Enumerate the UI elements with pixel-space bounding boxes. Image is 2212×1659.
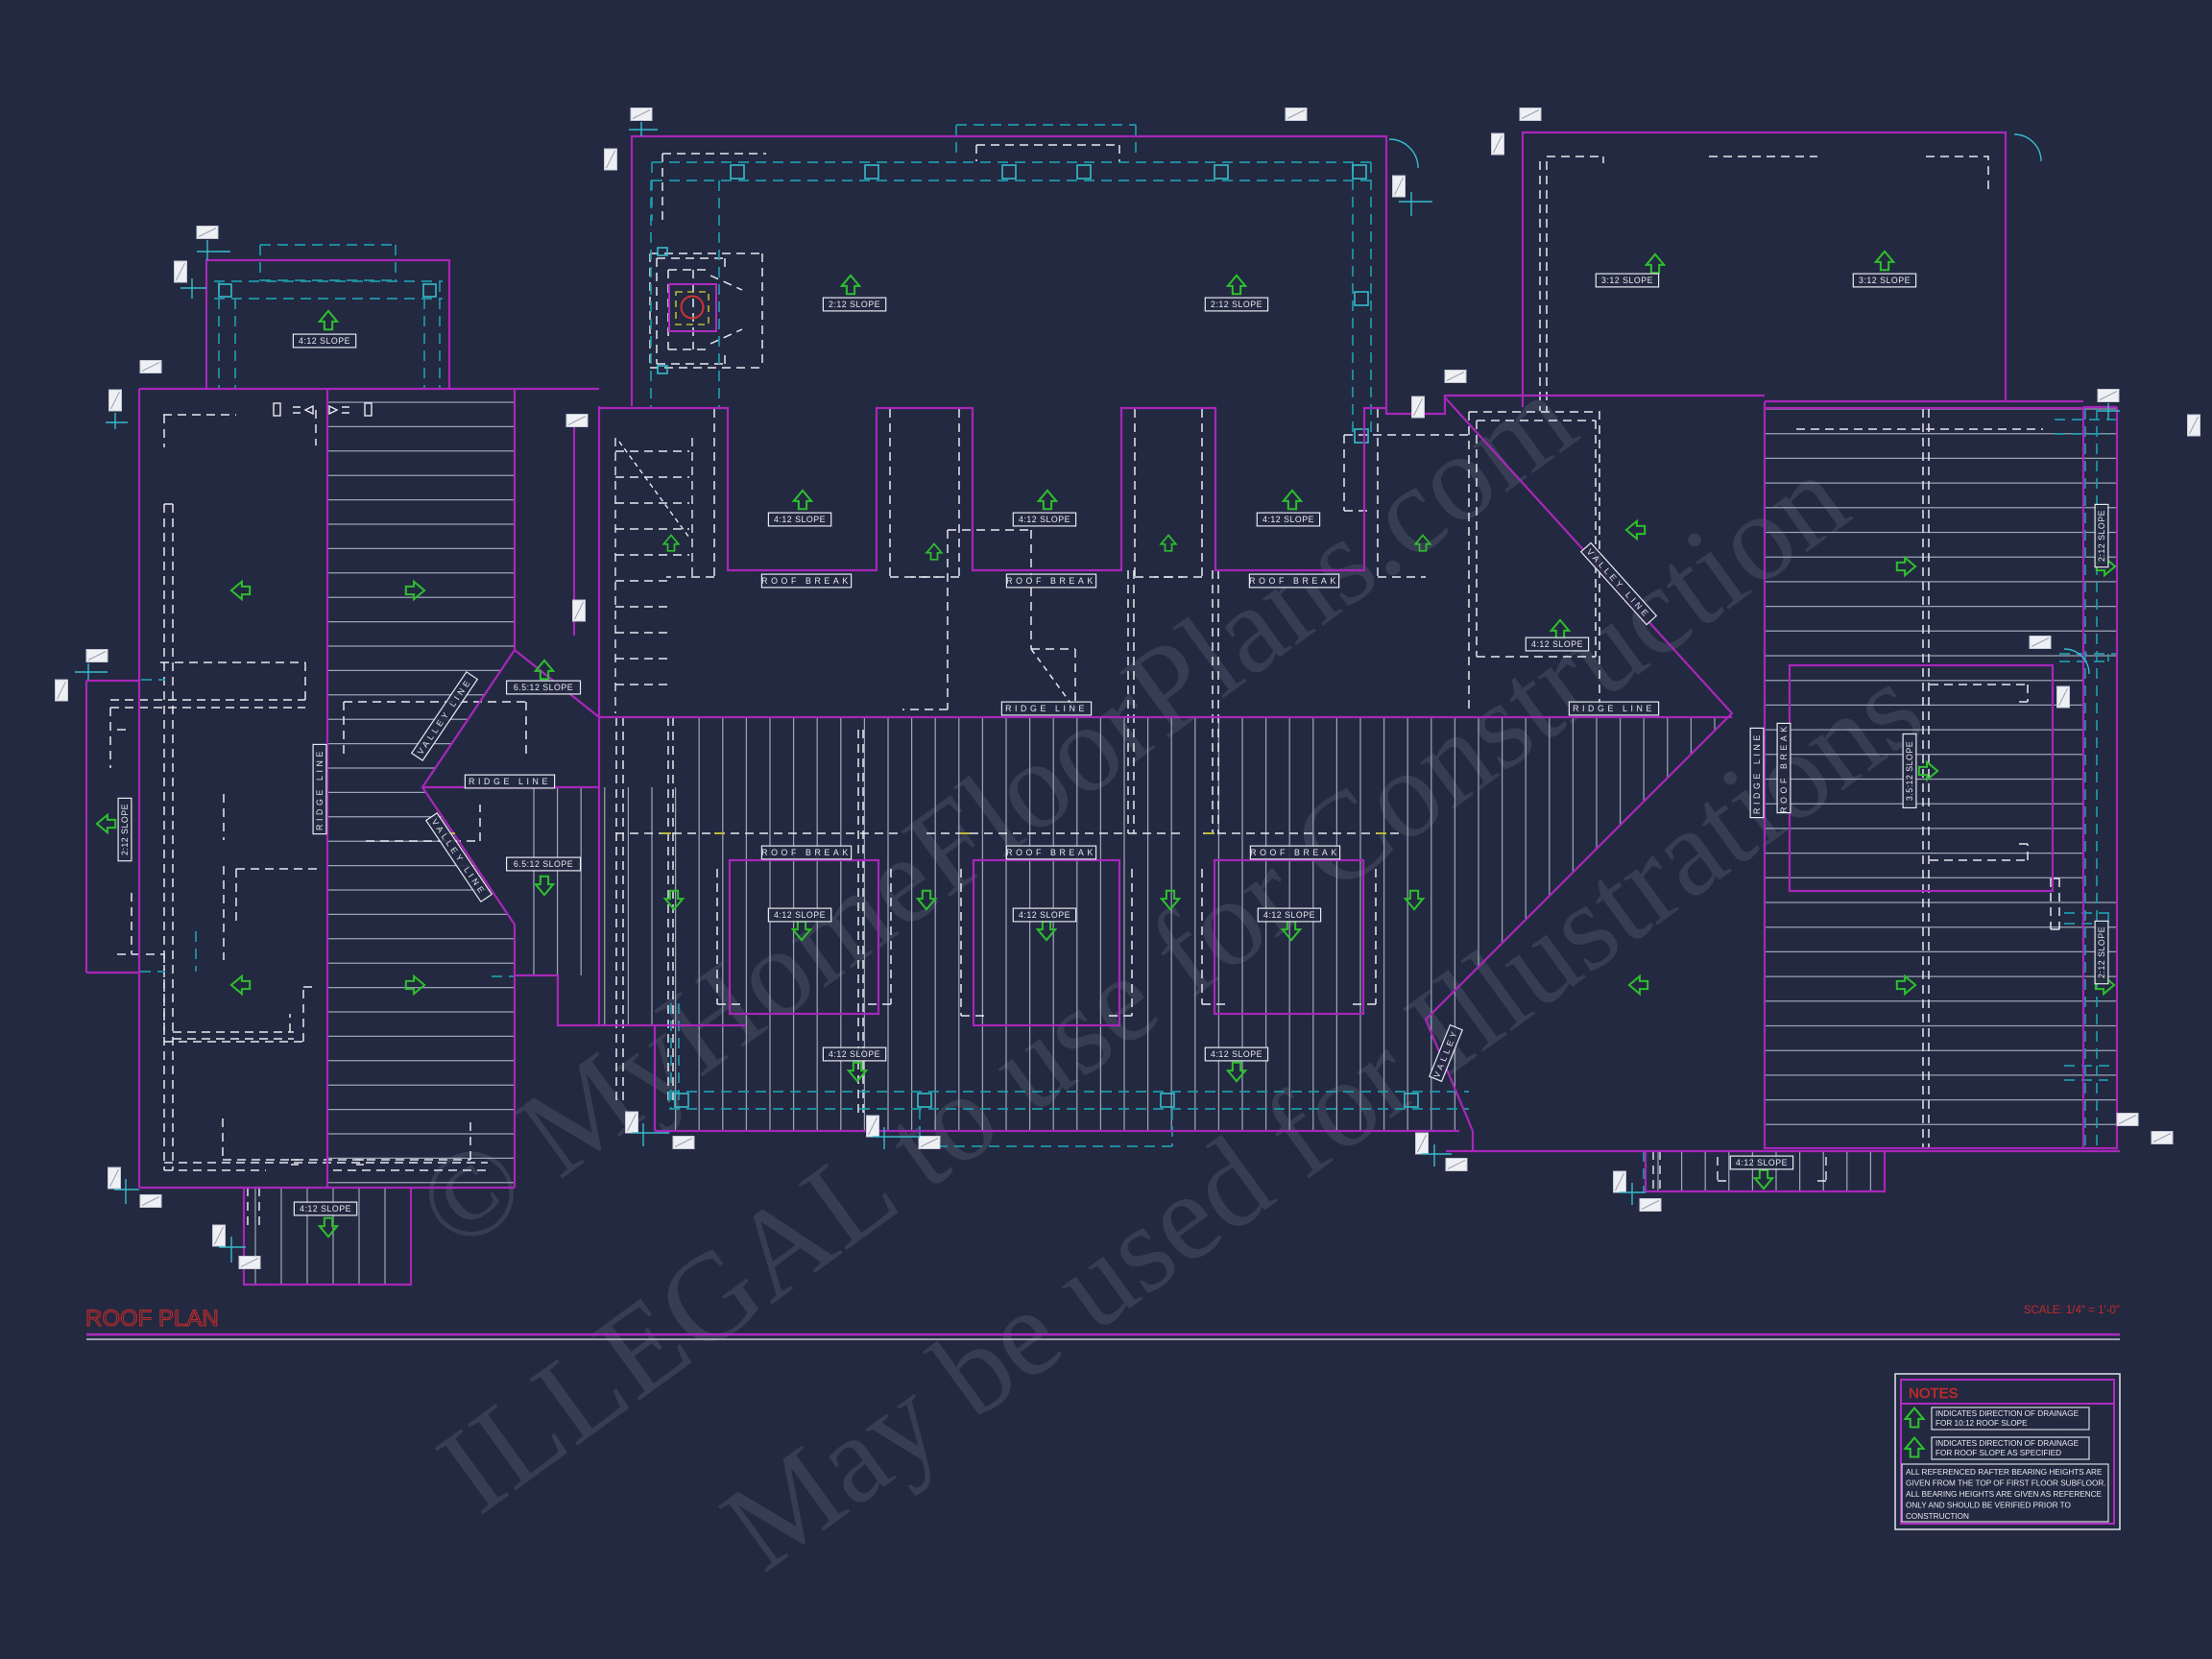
svg-text:3:12 SLOPE: 3:12 SLOPE (1601, 276, 1653, 285)
svg-text:4:12 SLOPE: 4:12 SLOPE (829, 1049, 880, 1059)
svg-text:4:12 SLOPE: 4:12 SLOPE (1211, 1049, 1262, 1059)
svg-text:4:12 SLOPE: 4:12 SLOPE (1262, 515, 1314, 524)
svg-text:4:12 SLOPE: 4:12 SLOPE (1019, 910, 1070, 920)
svg-text:ROOF PLAN: ROOF PLAN (85, 1306, 219, 1332)
svg-text:ONLY AND SHOULD BE VERIFIED PR: ONLY AND SHOULD BE VERIFIED PRIOR TO (1906, 1502, 2071, 1510)
svg-text:ROOF BREAK: ROOF BREAK (1779, 723, 1789, 813)
svg-text:6.5:12 SLOPE: 6.5:12 SLOPE (514, 859, 573, 869)
svg-text:2:12 SLOPE: 2:12 SLOPE (829, 300, 880, 309)
svg-text:6.5:12 SLOPE: 6.5:12 SLOPE (514, 683, 573, 692)
svg-text:4:12 SLOPE: 4:12 SLOPE (774, 910, 826, 920)
svg-text:4:12 SLOPE: 4:12 SLOPE (774, 515, 826, 524)
svg-text:RIDGE LINE: RIDGE LINE (1005, 704, 1088, 713)
svg-text:RIDGE LINE: RIDGE LINE (1752, 732, 1762, 814)
svg-text:4:12 SLOPE: 4:12 SLOPE (300, 1204, 351, 1214)
svg-text:SCALE: 1/4" = 1'-0": SCALE: 1/4" = 1'-0" (2024, 1305, 2120, 1316)
svg-text:CONSTRUCTION: CONSTRUCTION (1906, 1512, 1969, 1521)
svg-text:FOR ROOF SLOPE AS SPECIFIED: FOR ROOF SLOPE AS SPECIFIED (1935, 1449, 2061, 1457)
svg-text:3:12 SLOPE: 3:12 SLOPE (1859, 276, 1911, 285)
svg-text:ROOF BREAK: ROOF BREAK (1006, 576, 1096, 586)
svg-text:INDICATES DIRECTION OF DRAINAG: INDICATES DIRECTION OF DRAINAGE (1935, 1409, 2080, 1418)
svg-text:ROOF BREAK: ROOF BREAK (1250, 848, 1340, 857)
svg-text:2:12 SLOPE: 2:12 SLOPE (2097, 926, 2106, 978)
svg-text:4:12 SLOPE: 4:12 SLOPE (299, 336, 350, 346)
svg-text:ALL BEARING HEIGHTS ARE GIVEN: ALL BEARING HEIGHTS ARE GIVEN AS REFEREN… (1906, 1490, 2103, 1499)
svg-text:NOTES: NOTES (1909, 1385, 1959, 1402)
svg-text:FOR 10:12 ROOF SLOPE: FOR 10:12 ROOF SLOPE (1935, 1419, 2028, 1428)
svg-text:2:12 SLOPE: 2:12 SLOPE (120, 804, 130, 855)
svg-text:4:12 SLOPE: 4:12 SLOPE (1019, 515, 1070, 524)
svg-text:4:12 SLOPE: 4:12 SLOPE (1736, 1158, 1788, 1167)
svg-text:GIVEN FROM THE TOP OF FIRST FL: GIVEN FROM THE TOP OF FIRST FLOOR SUBFLO… (1906, 1479, 2106, 1488)
svg-text:2:12 SLOPE: 2:12 SLOPE (2097, 510, 2106, 562)
svg-text:ROOF BREAK: ROOF BREAK (761, 848, 852, 857)
svg-text:4:12 SLOPE: 4:12 SLOPE (1263, 910, 1315, 920)
svg-text:ALL REFERENCED RAFTER BEARING: ALL REFERENCED RAFTER BEARING HEIGHTS AR… (1906, 1468, 2103, 1477)
svg-text:INDICATES DIRECTION OF DRAINAG: INDICATES DIRECTION OF DRAINAGE (1935, 1439, 2080, 1448)
svg-text:RIDGE LINE: RIDGE LINE (469, 777, 551, 786)
svg-text:3.5:12 SLOPE: 3.5:12 SLOPE (1905, 741, 1914, 801)
svg-text:RIDGE LINE: RIDGE LINE (315, 748, 325, 830)
svg-text:4:12 SLOPE: 4:12 SLOPE (1531, 639, 1583, 649)
svg-text:ROOF BREAK: ROOF BREAK (1249, 576, 1339, 586)
svg-text:2:12 SLOPE: 2:12 SLOPE (1211, 300, 1262, 309)
svg-text:ROOF BREAK: ROOF BREAK (1006, 848, 1096, 857)
svg-text:ROOF BREAK: ROOF BREAK (761, 576, 852, 586)
svg-text:RIDGE LINE: RIDGE LINE (1573, 704, 1655, 713)
